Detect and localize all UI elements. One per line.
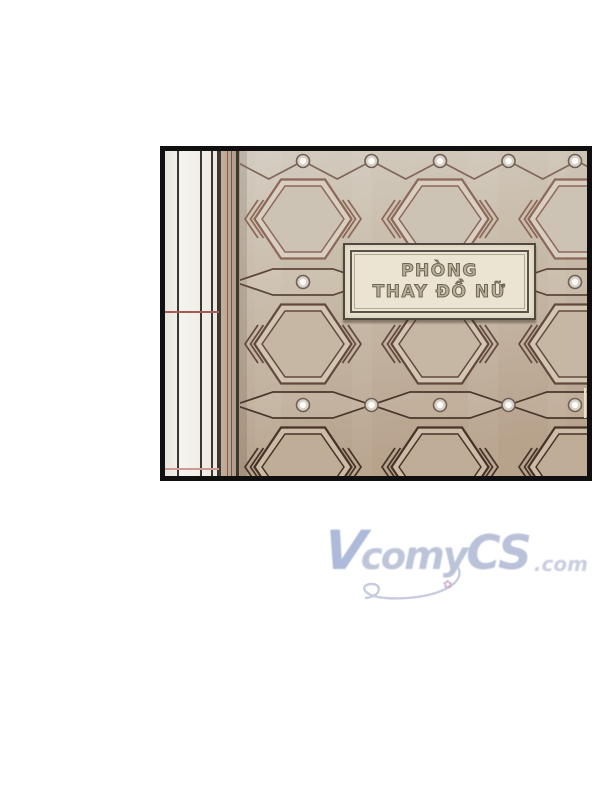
rivet-dot-center: [368, 158, 374, 164]
sign-line-1: PHÒNG: [401, 262, 478, 281]
trim-groove-line: [227, 151, 228, 476]
panel-interior: PHÒNG THAY ĐỒ NỮ: [165, 151, 587, 476]
watermark-flower-icon: ✿: [443, 578, 452, 591]
trim-groove-line: [236, 151, 239, 476]
wood-trim-strip: [219, 151, 240, 476]
rivet-dot-center: [300, 279, 306, 285]
marble-vein-line: [200, 151, 202, 476]
marble-accent-line: [165, 311, 219, 313]
rivet-dot-center: [300, 402, 306, 408]
trim-groove-line: [231, 151, 233, 476]
marble-vein-line: [177, 151, 179, 476]
rivet-dot-center: [572, 402, 578, 408]
watermark-flourish-icon: [330, 565, 500, 613]
wall-edge-shade: [240, 151, 247, 476]
rivet-dot-center: [437, 402, 443, 408]
trim-groove-line: [219, 151, 221, 476]
band-row-3: [240, 392, 587, 418]
marble-accent-line: [165, 468, 219, 470]
rivet-dot-center: [572, 158, 578, 164]
sign-line-2: THAY ĐỒ NỮ: [373, 283, 507, 302]
comic-panel: PHÒNG THAY ĐỒ NỮ: [160, 146, 592, 481]
marble-pilaster: [165, 151, 219, 476]
watermark-suffix: .com: [534, 552, 588, 576]
signboard: PHÒNG THAY ĐỒ NỮ: [343, 243, 536, 320]
rivet-dot-center: [437, 158, 443, 164]
rivet-dot-center: [505, 402, 511, 408]
comic-page: PHÒNG THAY ĐỒ NỮ V co my CS .com ✿: [0, 0, 600, 800]
rivet-dot-center: [505, 158, 511, 164]
rivet-dot-center: [300, 158, 306, 164]
signboard-frame: PHÒNG THAY ĐỒ NỮ: [350, 250, 529, 313]
marble-vein-line: [211, 151, 213, 476]
rivet-dot-center: [572, 279, 578, 285]
highlight-scratch: [584, 388, 586, 418]
rivet-dot-center: [368, 402, 374, 408]
